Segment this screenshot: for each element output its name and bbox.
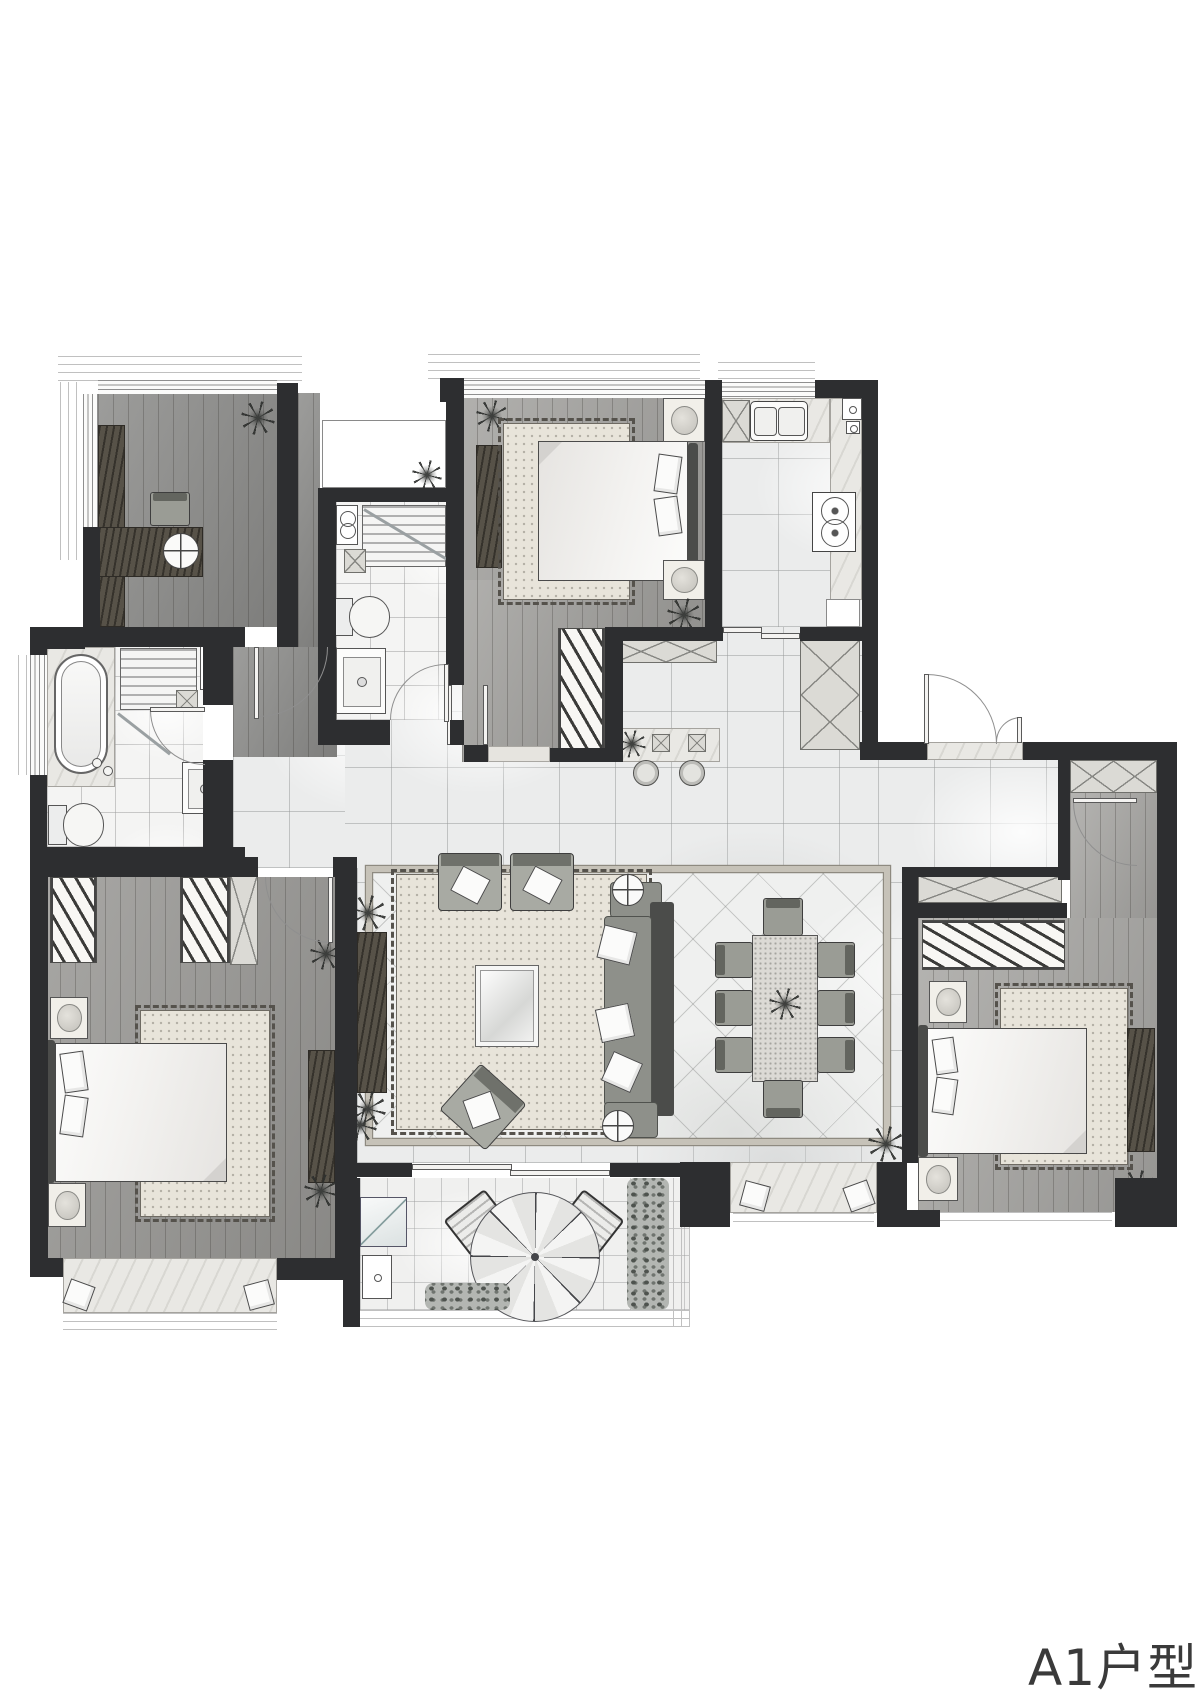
study-window <box>83 394 98 530</box>
bedroom3-closet <box>918 875 1062 903</box>
wall <box>318 720 390 745</box>
nightstand <box>48 1183 86 1227</box>
exterior-window-lines <box>58 356 302 382</box>
wall <box>705 380 722 633</box>
exterior-window-lines <box>18 655 30 775</box>
wall <box>902 867 1067 877</box>
wall <box>245 857 258 877</box>
entry-door-swing <box>927 674 997 744</box>
wall <box>610 1163 680 1177</box>
bedroom2-window <box>462 380 705 398</box>
wall <box>30 775 47 847</box>
terrace-unit <box>362 1255 392 1299</box>
door-threshold <box>488 746 550 762</box>
dining-chair <box>763 1080 803 1118</box>
bathtub <box>54 654 108 774</box>
wall <box>877 1162 907 1227</box>
wall <box>550 748 617 762</box>
sofa-back <box>650 902 674 1116</box>
greenery <box>627 1178 669 1310</box>
tv-console <box>357 932 387 1093</box>
entry-door-threshold <box>927 742 1023 760</box>
shoe-cabinet <box>800 640 860 750</box>
terrace-table <box>360 1197 407 1247</box>
study-bookcase <box>98 425 125 627</box>
exterior-window-lines <box>718 362 815 380</box>
duct-shaft <box>826 599 860 627</box>
door-leaf <box>254 647 259 719</box>
sofa-pillow <box>595 1003 635 1043</box>
master-dresser <box>308 1050 335 1183</box>
nightstand <box>663 398 705 442</box>
tub-faucet <box>92 758 102 768</box>
wall <box>623 627 723 641</box>
wall <box>1115 1178 1177 1227</box>
hall-closet <box>1070 760 1157 793</box>
bath2-drain <box>344 549 366 573</box>
wall <box>336 488 446 502</box>
nightstand <box>50 997 88 1039</box>
door-leaf <box>924 674 929 744</box>
dining-chair <box>817 942 855 978</box>
greenery <box>425 1283 510 1310</box>
toilet <box>48 800 104 848</box>
dining-bay-window <box>733 1213 874 1229</box>
bedroom3-wardrobe <box>922 920 1065 970</box>
cooktop <box>812 492 856 552</box>
wall <box>30 1258 63 1277</box>
entry-floor <box>878 742 1070 880</box>
armchair <box>438 853 502 911</box>
wall <box>680 1162 730 1227</box>
wall <box>907 1210 940 1227</box>
dining-chair <box>763 898 803 936</box>
door-leaf <box>328 877 333 943</box>
bath2-cabinet <box>336 505 358 545</box>
wall <box>30 647 47 655</box>
floor-lamp <box>612 874 644 906</box>
exterior-window-lines <box>428 354 700 380</box>
door-leaf <box>1017 717 1022 743</box>
wall <box>333 857 357 877</box>
kitchen-corner-cabinet <box>722 400 750 442</box>
master-wardrobe <box>180 877 230 963</box>
bar-stool <box>633 760 659 786</box>
study-window <box>98 380 277 394</box>
placemat <box>688 734 706 752</box>
wall <box>446 380 464 685</box>
wall <box>860 742 927 760</box>
bath2-toilet <box>334 593 390 639</box>
dining-chair <box>817 1037 855 1073</box>
wall <box>343 1178 360 1327</box>
nightstand <box>918 1157 958 1201</box>
study-chair <box>150 492 190 526</box>
wall <box>30 847 245 877</box>
tub-faucet <box>103 766 113 776</box>
wall <box>464 745 488 762</box>
bath-window <box>30 655 47 775</box>
wall <box>203 627 233 705</box>
wall <box>30 847 48 1258</box>
bedroom2-dresser <box>476 445 502 568</box>
meter-box <box>842 398 862 420</box>
bar-stool <box>679 760 705 786</box>
bedroom2-wardrobe <box>558 628 605 750</box>
wall <box>277 383 298 647</box>
nightstand <box>929 981 967 1023</box>
bedroom3-window <box>940 1212 1112 1228</box>
wall <box>862 398 878 743</box>
plant <box>412 460 442 490</box>
wall <box>1157 760 1177 1185</box>
sliding-door <box>761 633 800 639</box>
master-bay-window <box>63 1313 277 1333</box>
bedroom3-dresser <box>1127 1028 1155 1152</box>
floor-lamp <box>602 1110 634 1142</box>
coffee-table <box>475 965 539 1047</box>
plant <box>241 401 275 435</box>
sliding-door <box>723 627 762 633</box>
dining-chair <box>817 990 855 1026</box>
wall <box>450 720 464 745</box>
wall <box>357 1163 412 1177</box>
wall <box>318 488 336 745</box>
sliding-door <box>412 1164 512 1170</box>
meter-box <box>846 421 860 434</box>
armchair <box>510 853 574 911</box>
sliding-door <box>510 1170 610 1176</box>
wall <box>800 627 862 641</box>
wall <box>1023 742 1177 760</box>
wardrobe-panel <box>230 875 258 965</box>
study-globe <box>163 533 199 569</box>
plant <box>868 1126 904 1162</box>
wall <box>605 627 623 762</box>
plant <box>304 1174 338 1208</box>
wall <box>440 378 464 402</box>
door-leaf <box>1073 798 1137 803</box>
door-leaf <box>483 685 488 745</box>
dining-chair <box>715 990 753 1026</box>
table-centerpiece <box>769 988 801 1020</box>
dining-chair <box>715 1037 753 1073</box>
placemat <box>652 734 670 752</box>
kitchen-window <box>722 382 815 398</box>
floor-plan: A1户型 <box>0 0 1200 1696</box>
plan-title: A1户型 <box>1028 1628 1198 1696</box>
pillow <box>653 496 682 537</box>
wall <box>277 1258 343 1280</box>
dining-chair <box>715 942 753 978</box>
nightstand <box>663 560 705 600</box>
entry-closet <box>615 640 717 663</box>
wall <box>815 380 878 398</box>
wall <box>902 903 1067 918</box>
wall <box>1058 760 1070 880</box>
kitchen-sink <box>750 401 808 441</box>
exterior-window-lines <box>60 382 84 560</box>
wall <box>83 527 100 627</box>
wall <box>203 760 233 847</box>
bath2-sink <box>336 648 386 714</box>
door-leaf <box>444 664 449 722</box>
master-wardrobe <box>50 877 97 963</box>
corridor-floor <box>298 393 320 647</box>
door-leaf <box>150 707 205 712</box>
